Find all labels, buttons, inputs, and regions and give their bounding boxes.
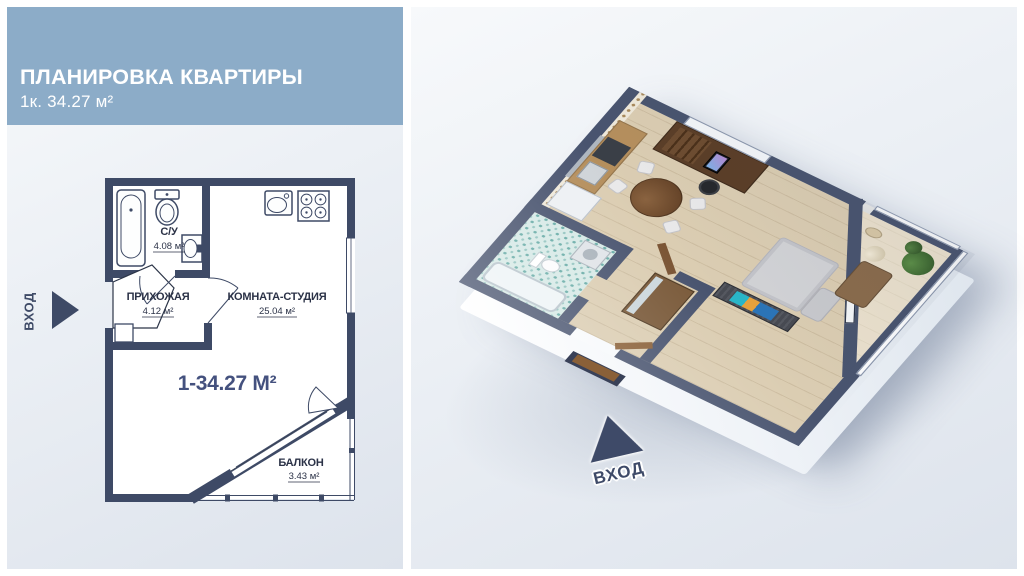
floorplan-2d-drawing: С/У 4.08 м² ПРИХОЖАЯ 4.12 м² КОМНАТА-СТУ… (105, 178, 355, 508)
entrance-label-3d: ВХОД (563, 452, 675, 496)
bathtub-icon (117, 190, 145, 266)
entrance-arrow-2d (52, 291, 79, 329)
apartment-area-subtitle: 1к. 34.27 м² (20, 92, 403, 112)
hallway-cabinet (115, 324, 133, 342)
total-area-label: 1-34.27 М² (178, 372, 277, 395)
hallway-label: ПРИХОЖАЯ (127, 291, 190, 303)
washbasin-icon (182, 235, 202, 262)
stove-icon (298, 191, 329, 221)
bathroom-label: С/У (160, 226, 178, 238)
floorplan-2d-panel: ПЛАНИРОВКА КВАРТИРЫ 1к. 34.27 м² (7, 7, 403, 569)
studio-label: КОМНАТА-СТУДИЯ (228, 291, 327, 303)
window-east (347, 238, 356, 313)
toilet-icon (155, 190, 179, 225)
entrance-label-2d: ВХОД (21, 287, 37, 335)
balcony-label: БАЛКОН (278, 457, 324, 469)
hallway-area: 4.12 м² (143, 306, 174, 317)
floorplan-3d-panel: ВХОД (411, 7, 1017, 569)
page-title: ПЛАНИРОВКА КВАРТИРЫ (20, 66, 403, 89)
studio-area: 25.04 м² (259, 306, 295, 317)
kitchen-sink-icon (265, 191, 292, 215)
balcony-area: 3.43 м² (289, 471, 320, 482)
bathroom-area: 4.08 м² (154, 241, 185, 252)
plan-header: ПЛАНИРОВКА КВАРТИРЫ 1к. 34.27 м² (7, 7, 403, 125)
